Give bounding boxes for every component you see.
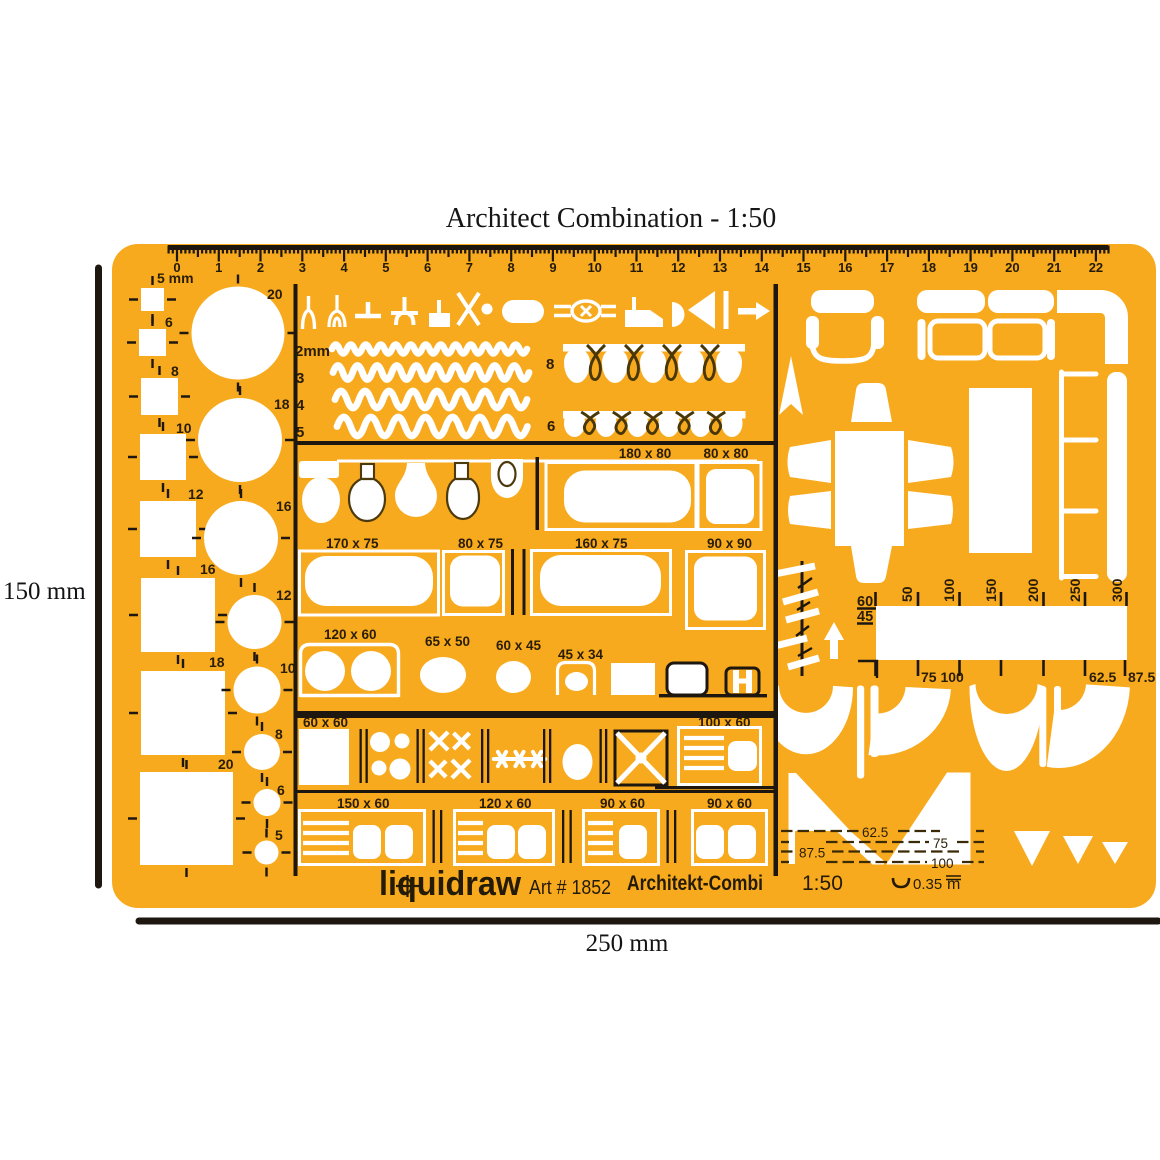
svg-text:8: 8	[171, 363, 179, 379]
svg-text:16: 16	[200, 561, 216, 577]
svg-text:18: 18	[209, 654, 225, 670]
svg-text:m: m	[947, 876, 960, 893]
svg-text:3: 3	[299, 260, 306, 275]
svg-text:80 x 80: 80 x 80	[703, 446, 748, 461]
svg-text:19: 19	[963, 260, 977, 275]
svg-text:14: 14	[755, 260, 770, 275]
svg-text:90 x 60: 90 x 60	[707, 796, 752, 811]
svg-text:20: 20	[1005, 260, 1019, 275]
svg-text:90 x 60: 90 x 60	[600, 796, 645, 811]
svg-text:22: 22	[1089, 260, 1103, 275]
svg-text:90 x 90: 90 x 90	[707, 536, 752, 551]
svg-text:1:50: 1:50	[802, 872, 843, 895]
svg-text:75 100: 75 100	[921, 669, 964, 685]
svg-text:liquidraw: liquidraw	[379, 865, 522, 903]
svg-text:0.35: 0.35	[913, 876, 942, 893]
svg-text:Architect Combination - 1:50: Architect Combination - 1:50	[446, 203, 777, 234]
svg-text:21: 21	[1047, 260, 1061, 275]
svg-text:Architekt-Combi: Architekt-Combi	[627, 872, 763, 895]
svg-text:200: 200	[1025, 578, 1041, 602]
svg-text:2: 2	[257, 260, 264, 275]
svg-text:8: 8	[508, 260, 515, 275]
svg-text:10: 10	[176, 420, 192, 436]
svg-text:15: 15	[796, 260, 810, 275]
svg-text:10: 10	[587, 260, 601, 275]
svg-text:1: 1	[215, 260, 222, 275]
svg-text:6: 6	[424, 260, 431, 275]
svg-text:11: 11	[630, 260, 644, 275]
svg-text:100: 100	[941, 578, 957, 602]
svg-text:4: 4	[296, 397, 305, 414]
svg-text:180 x 80: 180 x 80	[619, 446, 672, 461]
svg-text:18: 18	[922, 260, 936, 275]
svg-text:20: 20	[267, 286, 283, 302]
svg-text:5: 5	[382, 260, 389, 275]
svg-text:50: 50	[899, 586, 915, 602]
svg-text:250: 250	[1067, 578, 1083, 602]
svg-text:62.5: 62.5	[1089, 669, 1116, 685]
svg-text:100: 100	[931, 856, 954, 871]
svg-text:8: 8	[546, 356, 554, 373]
svg-text:8: 8	[275, 726, 283, 742]
svg-text:170 x 75: 170 x 75	[326, 536, 379, 551]
svg-text:60 x 45: 60 x 45	[496, 638, 542, 653]
svg-text:12: 12	[188, 486, 204, 502]
svg-text:80 x 75: 80 x 75	[458, 536, 504, 551]
svg-text:4: 4	[340, 260, 348, 275]
svg-text:7: 7	[466, 260, 473, 275]
svg-text:3: 3	[296, 370, 304, 387]
svg-text:75: 75	[933, 836, 948, 851]
svg-text:5: 5	[296, 424, 304, 441]
svg-text:87.5: 87.5	[799, 846, 825, 861]
svg-text:5: 5	[275, 827, 283, 843]
svg-text:Art # 1852: Art # 1852	[529, 877, 611, 899]
svg-text:120 x 60: 120 x 60	[324, 627, 377, 642]
svg-text:5 mm: 5 mm	[157, 270, 194, 286]
svg-text:9: 9	[549, 260, 556, 275]
svg-text:17: 17	[880, 260, 894, 275]
svg-text:150: 150	[983, 578, 999, 602]
svg-text:150 mm: 150 mm	[3, 578, 86, 605]
svg-text:6: 6	[277, 782, 285, 798]
svg-text:2mm: 2mm	[295, 343, 330, 360]
svg-text:13: 13	[713, 260, 727, 275]
svg-text:6: 6	[165, 314, 173, 330]
svg-text:120 x 60: 120 x 60	[479, 796, 532, 811]
svg-text:250 mm: 250 mm	[586, 930, 669, 957]
svg-text:65 x 50: 65 x 50	[425, 634, 470, 649]
svg-text:12: 12	[671, 260, 685, 275]
svg-text:12: 12	[276, 587, 292, 603]
svg-text:16: 16	[838, 260, 852, 275]
svg-text:6: 6	[547, 418, 555, 435]
svg-text:150 x 60: 150 x 60	[337, 796, 390, 811]
svg-text:20: 20	[218, 756, 234, 772]
svg-text:18: 18	[274, 396, 290, 412]
svg-text:16: 16	[276, 498, 292, 514]
svg-text:45 x 34: 45 x 34	[558, 647, 604, 662]
svg-text:300: 300	[1109, 578, 1125, 602]
svg-text:10: 10	[280, 660, 296, 676]
svg-text:62.5: 62.5	[862, 825, 888, 840]
svg-text:60 x 60: 60 x 60	[303, 715, 348, 730]
svg-text:160 x 75: 160 x 75	[575, 536, 628, 551]
svg-text:87.5: 87.5	[1128, 669, 1155, 685]
